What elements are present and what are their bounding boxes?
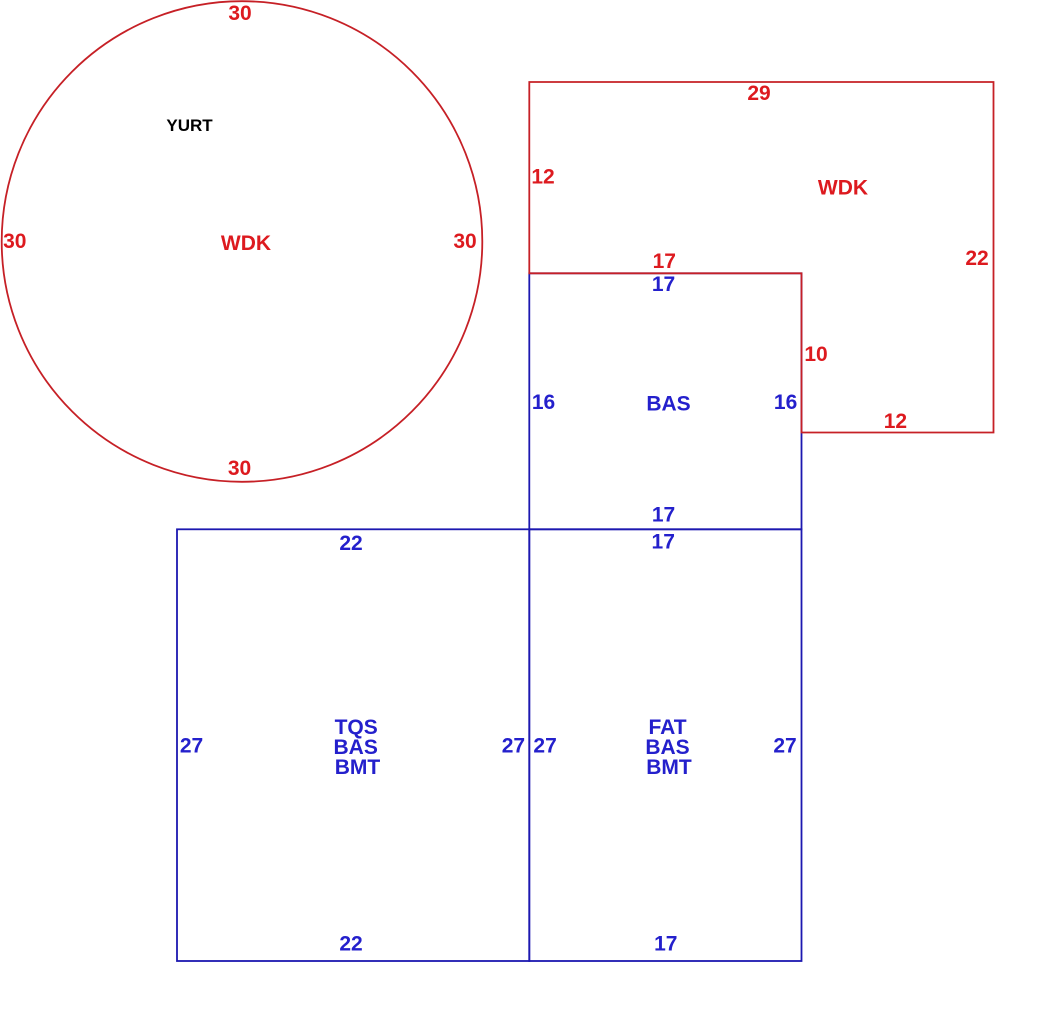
svg-text:17: 17: [653, 250, 676, 273]
svg-text:12: 12: [884, 410, 907, 433]
svg-text:BMT: BMT: [335, 756, 381, 779]
svg-text:17: 17: [654, 933, 677, 956]
svg-text:16: 16: [532, 391, 555, 414]
svg-text:30: 30: [228, 2, 251, 25]
svg-text:17: 17: [652, 273, 675, 296]
svg-text:30: 30: [453, 230, 476, 253]
svg-text:BAS: BAS: [646, 393, 690, 416]
svg-text:10: 10: [804, 343, 827, 366]
svg-text:30: 30: [228, 457, 251, 480]
svg-text:16: 16: [774, 391, 797, 414]
svg-text:BMT: BMT: [646, 756, 692, 779]
svg-text:27: 27: [533, 735, 556, 758]
svg-text:22: 22: [965, 247, 988, 270]
svg-text:22: 22: [339, 933, 362, 956]
svg-text:30: 30: [3, 230, 26, 253]
svg-text:27: 27: [180, 735, 203, 758]
svg-text:YURT: YURT: [166, 116, 213, 135]
svg-text:22: 22: [339, 532, 362, 555]
svg-text:17: 17: [652, 531, 675, 554]
svg-text:29: 29: [747, 82, 770, 105]
svg-text:WDK: WDK: [221, 232, 271, 255]
svg-text:12: 12: [531, 166, 554, 189]
svg-text:WDK: WDK: [818, 177, 868, 200]
svg-text:27: 27: [502, 735, 525, 758]
svg-text:27: 27: [773, 735, 796, 758]
svg-text:17: 17: [652, 504, 675, 527]
